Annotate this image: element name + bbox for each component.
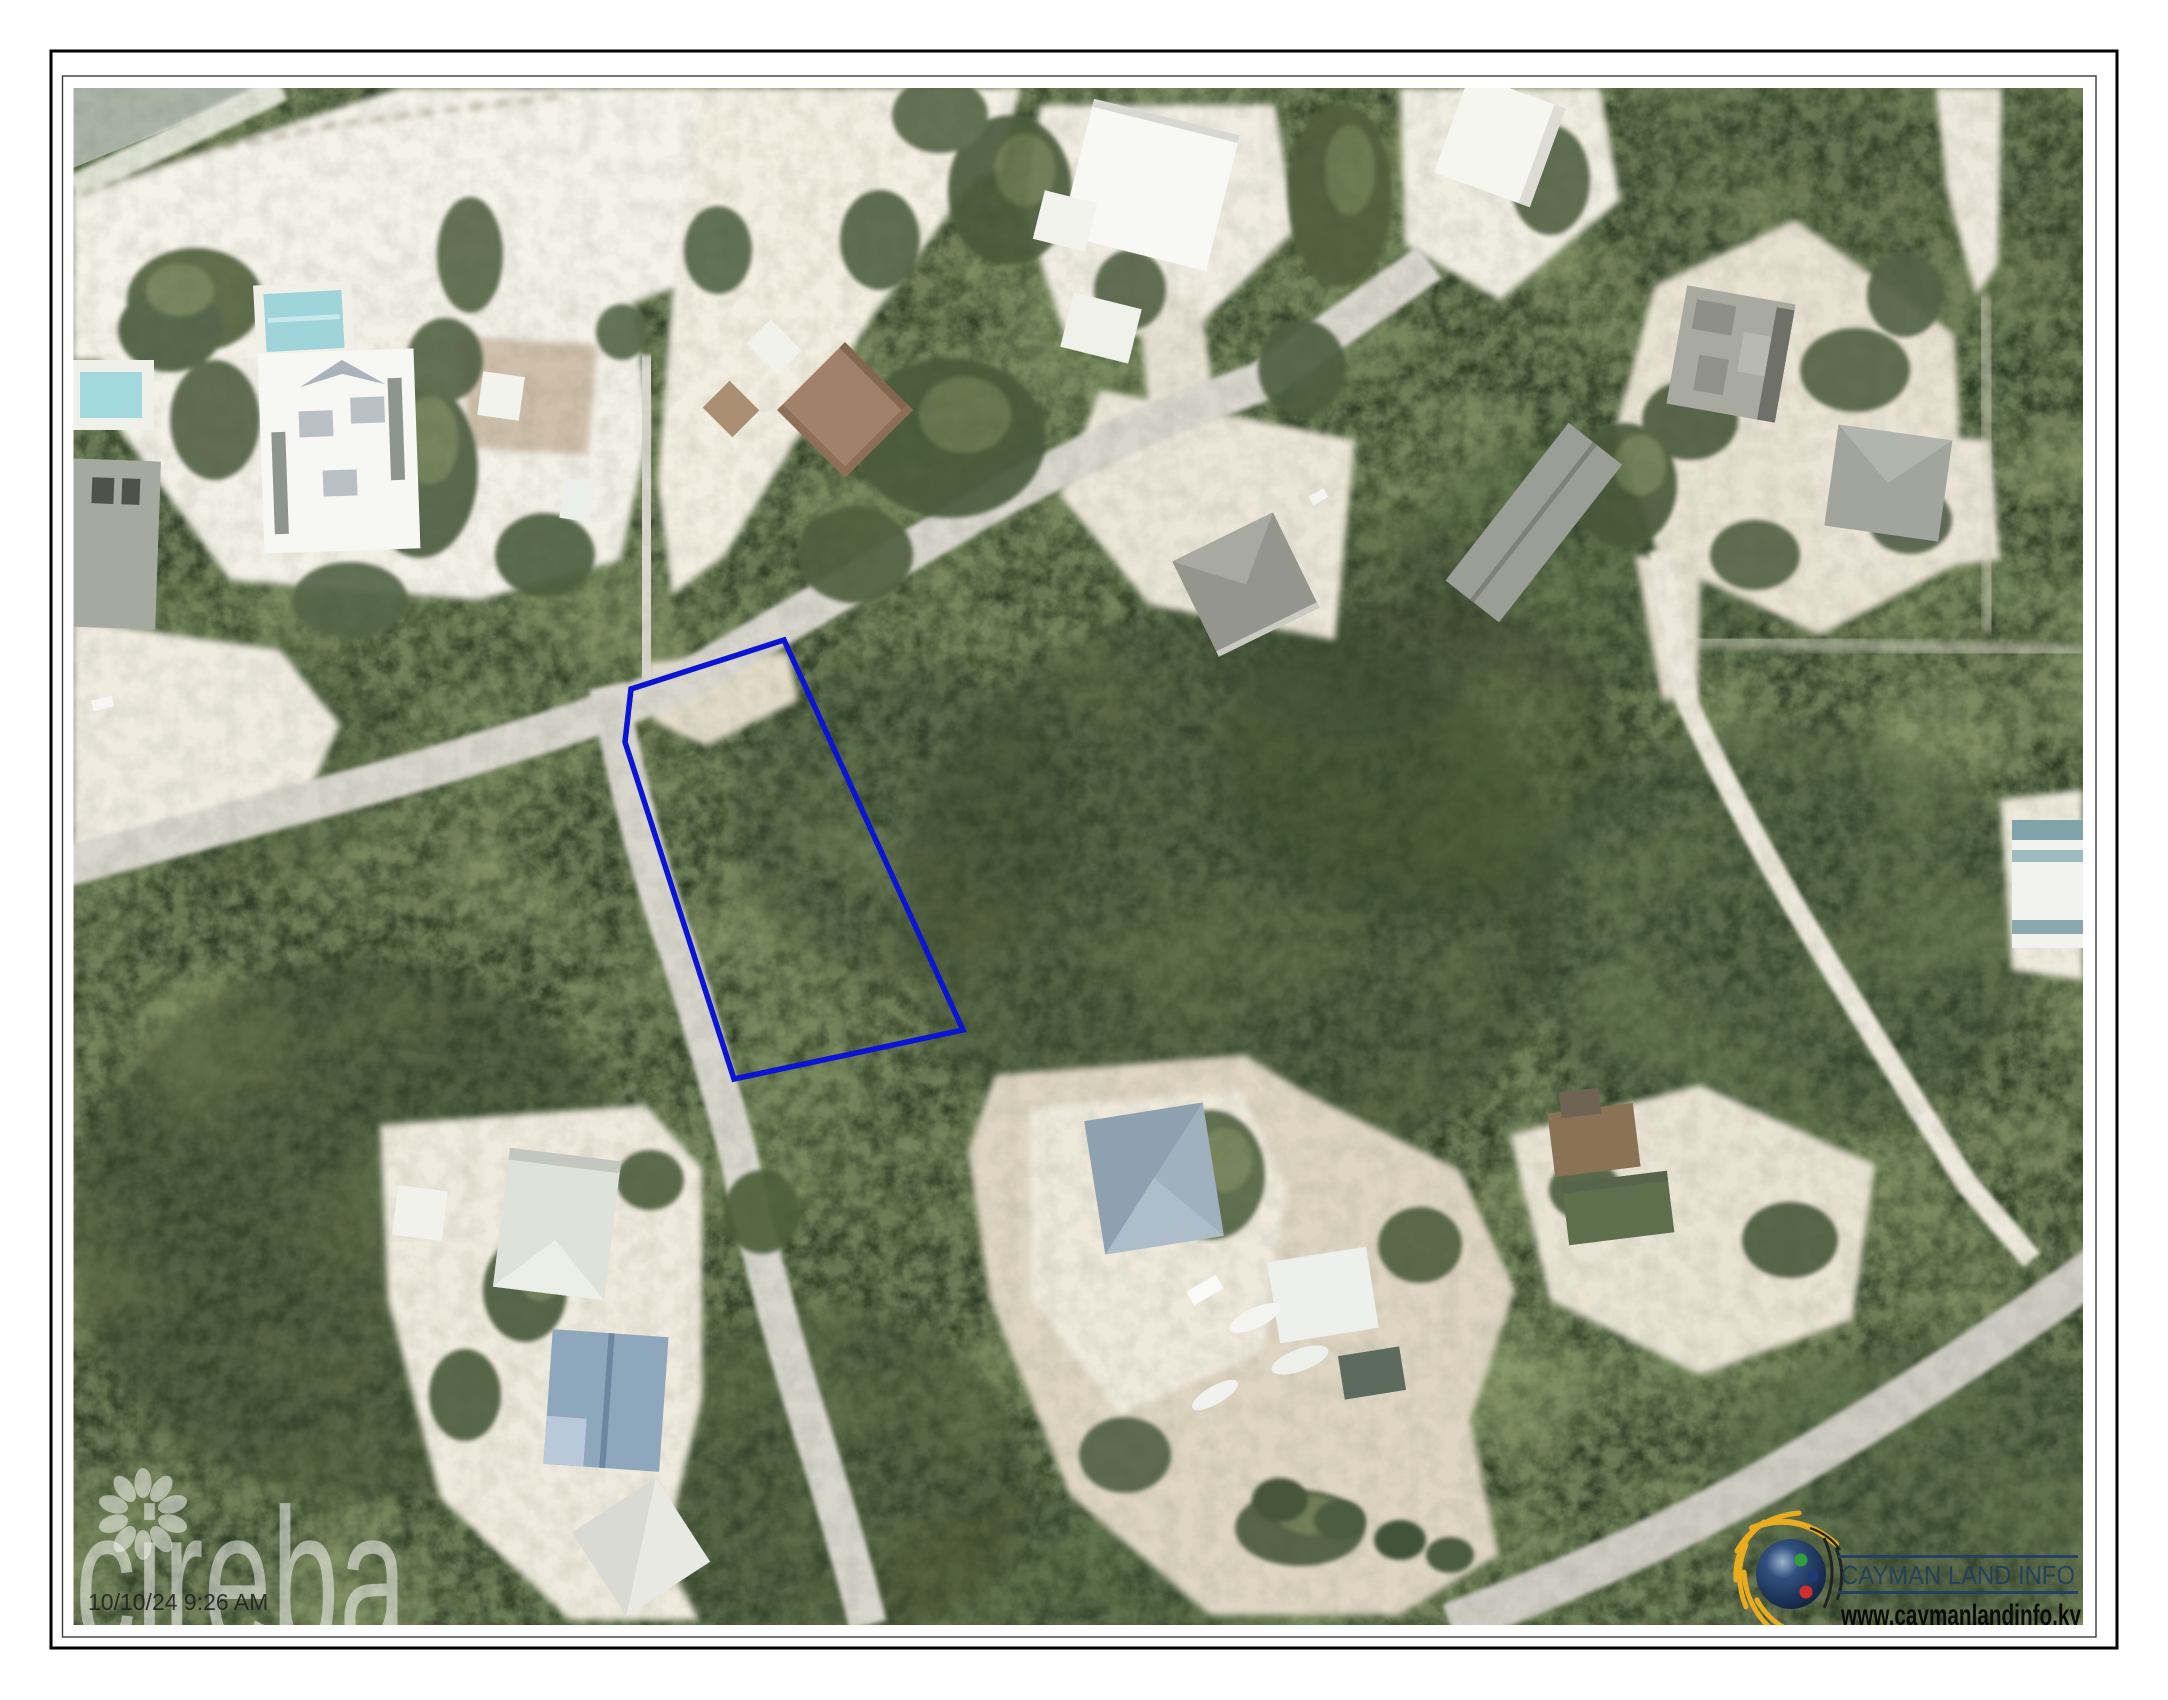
svg-text:CAYMAN LAND INFO: CAYMAN LAND INFO bbox=[1841, 1560, 2075, 1590]
svg-text:10/10/24 9:26 AM: 10/10/24 9:26 AM bbox=[88, 1589, 268, 1615]
